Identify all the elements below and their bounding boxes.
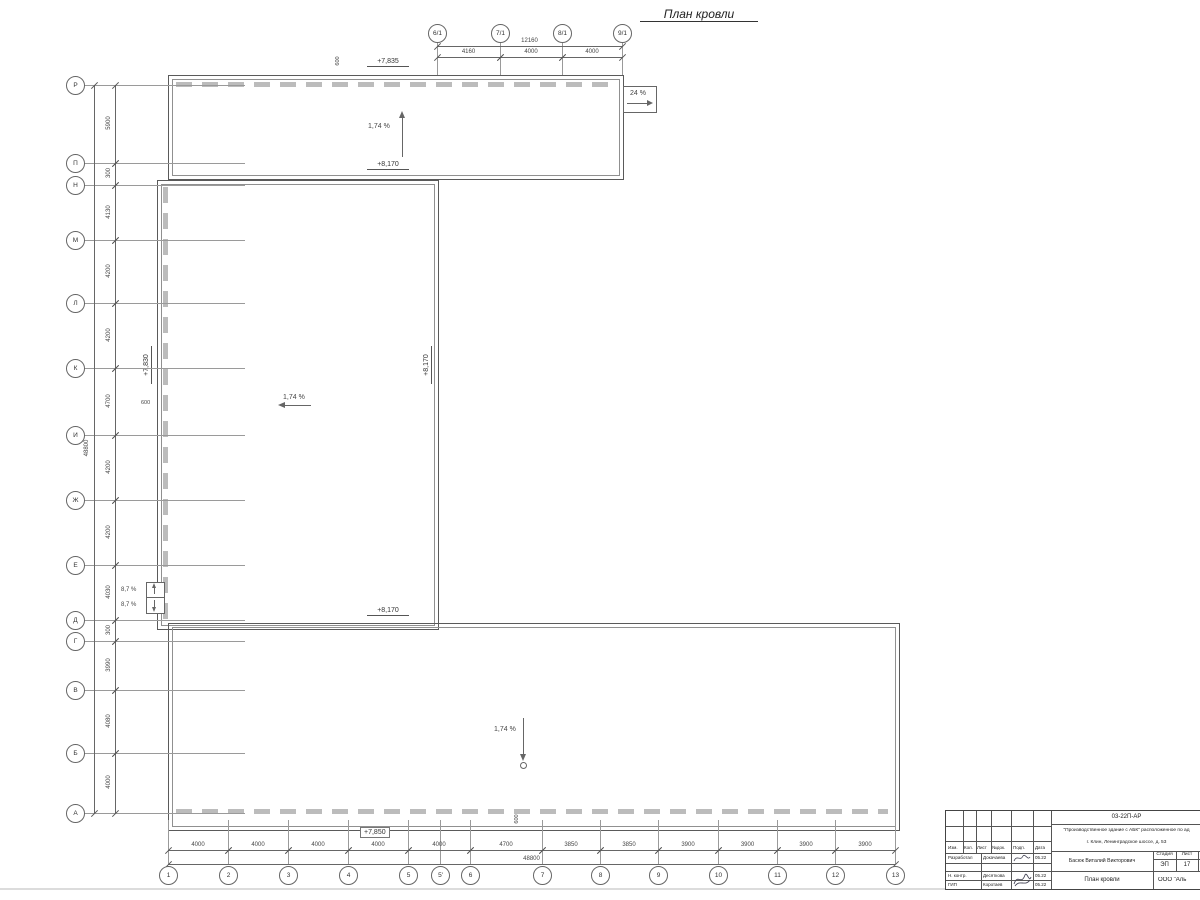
stamp-name: Коротаев <box>983 882 1002 887</box>
axis-bubble: К <box>66 359 85 378</box>
axis-bubble: 4 <box>339 866 358 885</box>
axis-bubble: 9/1 <box>613 24 632 43</box>
slope-arrowhead-icon <box>152 583 156 588</box>
dim-label: 4160 <box>462 49 475 55</box>
axis-line <box>84 753 245 754</box>
dim-label: 3900 <box>741 842 754 848</box>
axis-line <box>84 565 245 566</box>
stamp-role: ГИП <box>948 882 957 887</box>
stamp-doc-number: 03-22П-АР <box>1051 814 1200 820</box>
stamp-sheet-value: 17 <box>1176 862 1198 868</box>
axis-bubble: 7/1 <box>491 24 510 43</box>
elevation-mark: +8,170 <box>367 160 409 170</box>
elevation-mark: +7,835 <box>367 57 409 67</box>
stamp-line <box>1051 871 1200 872</box>
dim-line <box>168 864 895 865</box>
stamp-line <box>946 841 1051 842</box>
axis-bubble: 8 <box>591 866 610 885</box>
signature <box>1012 871 1032 888</box>
slope-arrow <box>627 103 648 104</box>
dim-label: 3900 <box>858 842 871 848</box>
axis-bubble: В <box>66 681 85 700</box>
axis-bubble: 3 <box>279 866 298 885</box>
axis-extension-line <box>600 820 601 864</box>
signature <box>1012 853 1032 863</box>
dim-label: 4130 <box>106 195 112 229</box>
axis-bubble: 1 <box>159 866 178 885</box>
stamp-line <box>1198 851 1199 871</box>
axis-bubble: 12 <box>826 866 845 885</box>
dim-line <box>94 85 95 813</box>
stamp-line <box>1153 859 1200 860</box>
axis-bubble: 5' <box>431 866 450 885</box>
axis-extension-line <box>777 820 778 864</box>
dim-label: 4000 <box>106 765 112 799</box>
slope-label: 24 % <box>630 90 646 98</box>
axis-bubble: Р <box>66 76 85 95</box>
axis-extension-line <box>470 820 471 864</box>
dim-label: 3990 <box>106 648 112 682</box>
axis-bubble: Д <box>66 611 85 630</box>
slope-label: 8,7 % <box>121 601 136 609</box>
stamp-line <box>946 880 1051 881</box>
elevation-mark: +8,170 <box>367 606 409 616</box>
stamp-header-list: Лист <box>977 845 987 850</box>
stamp-date: 05.22 <box>1035 882 1046 887</box>
slope-label: 8,7 % <box>121 586 136 594</box>
axis-bubble: Б <box>66 744 85 763</box>
stamp-date: 05.22 <box>1035 855 1046 860</box>
stamp-stage-value: ЭП <box>1153 862 1176 868</box>
dim-label: 4700 <box>106 384 112 418</box>
elevation-mark: +7,830 <box>142 346 152 384</box>
stamp-stage-label: Стадия <box>1153 852 1176 857</box>
axis-bubble: П <box>66 154 85 173</box>
axis-bubble: Л <box>66 294 85 313</box>
stamp-role: Разработал <box>948 855 973 860</box>
axis-bubble: 8/1 <box>553 24 572 43</box>
stamp-company: ООО "Аль <box>1158 877 1200 883</box>
slope-label: 1,74 % <box>368 123 390 131</box>
axis-line <box>84 85 245 86</box>
axis-line <box>84 303 245 304</box>
dim-label: 4200 <box>106 318 112 352</box>
dim-line <box>437 46 622 47</box>
stamp-header-kol: Кол. <box>964 845 973 850</box>
axis-bubble: 11 <box>768 866 787 885</box>
stamp-sheet-title: План кровли <box>1051 877 1153 883</box>
axis-bubble: 10 <box>709 866 728 885</box>
parapet-dashed-line-bottom <box>176 809 888 814</box>
stamp-line <box>946 826 1051 827</box>
drawing-sheet: План кровли +7,835 +8,170 +7,830 +8,170 … <box>0 0 1200 900</box>
dim-label: 4000 <box>191 842 204 848</box>
axis-line <box>84 368 245 369</box>
axis-extension-line <box>718 820 719 864</box>
axis-extension-line <box>895 820 896 864</box>
slope-arrowhead-icon <box>152 607 156 612</box>
axis-line <box>84 690 245 691</box>
dim-line <box>168 850 895 851</box>
axis-line <box>84 500 245 501</box>
dim-line <box>437 57 622 58</box>
stamp-sheet-label: Лист <box>1176 852 1198 857</box>
axis-extension-line <box>408 820 409 864</box>
stamp-header-izm: Изм. <box>948 845 958 850</box>
dim-label: 3850 <box>564 842 577 848</box>
stamp-project-line2: г. Клин, Ленинградское шоссе, д. 53 <box>1052 840 1200 845</box>
axis-bubble: М <box>66 231 85 250</box>
stamp-role: Н. контр. <box>948 873 967 878</box>
dim-label: 4000 <box>311 842 324 848</box>
drain-funnel-icon <box>520 762 527 769</box>
slope-arrow <box>402 117 403 157</box>
roof-section-bottom-inner <box>172 627 896 827</box>
axis-extension-line <box>835 820 836 864</box>
axis-bubble: Е <box>66 556 85 575</box>
stamp-header-podp: Подп. <box>1013 845 1025 850</box>
axis-bubble: И <box>66 426 85 445</box>
dim-label: 4080 <box>106 704 112 738</box>
elevation-mark: +8,170 <box>422 346 432 384</box>
slope-label: 1,74 % <box>283 394 305 402</box>
slope-arrowhead-icon <box>647 100 653 106</box>
stamp-line <box>946 853 1051 854</box>
stamp-header-data: Дата <box>1035 845 1045 850</box>
dim-label: 4200 <box>106 515 112 549</box>
slope-arrowhead-icon <box>399 111 405 118</box>
dim-label: 3900 <box>799 842 812 848</box>
parapet-dashed-line-left <box>163 187 168 621</box>
dim-label: 300 <box>106 613 112 647</box>
axis-bubble: 9 <box>649 866 668 885</box>
axis-line <box>84 813 245 814</box>
axis-extension-line <box>658 820 659 864</box>
axis-bubble: Н <box>66 176 85 195</box>
stamp-line <box>946 871 1051 872</box>
dim-label: 4000 <box>585 49 598 55</box>
dim-label: 4000 <box>371 842 384 848</box>
drawing-title: План кровли <box>640 7 758 22</box>
title-block: Изм. Кол. Лист №док. Подп. Дата Разработ… <box>945 810 1200 890</box>
slope-label: 1,74 % <box>494 726 516 734</box>
stamp-line <box>1033 811 1034 889</box>
stamp-line <box>1051 824 1200 825</box>
stamp-date: 05.22 <box>1035 873 1046 878</box>
dim-line <box>115 85 116 813</box>
dim-label: 12160 <box>521 38 538 44</box>
axis-bubble: 6/1 <box>428 24 447 43</box>
stamp-name: Докачаева <box>983 855 1005 860</box>
axis-line <box>84 435 245 436</box>
axis-extension-line <box>288 820 289 864</box>
axis-bubble: А <box>66 804 85 823</box>
axis-line <box>84 240 245 241</box>
dim-600: 600 <box>335 49 341 73</box>
dim-label: 3900 <box>681 842 694 848</box>
stamp-name: Десяткова <box>983 873 1005 878</box>
axis-bubble: 7 <box>533 866 552 885</box>
slope-arrow <box>284 405 311 406</box>
dim-label: 4000 <box>251 842 264 848</box>
dim-label: 4200 <box>106 254 112 288</box>
axis-bubble: 6 <box>461 866 480 885</box>
axis-extension-line <box>348 820 349 864</box>
axis-bubble: 13 <box>886 866 905 885</box>
dim-label: 4030 <box>106 575 112 609</box>
axis-bubble: Г <box>66 632 85 651</box>
stamp-line <box>946 863 1051 864</box>
dim-600: 600 <box>514 807 520 831</box>
dim-label: 4200 <box>106 450 112 484</box>
dim-label: 48800 <box>523 856 540 862</box>
dim-label: 5900 <box>106 106 112 140</box>
slope-arrow <box>523 718 524 754</box>
axis-bubble: 2 <box>219 866 238 885</box>
slope-arrowhead-icon <box>278 402 285 408</box>
axis-extension-line <box>542 820 543 864</box>
axis-extension-line <box>228 820 229 864</box>
stamp-header-ndok: №док. <box>992 845 1005 850</box>
dim-600: 600 <box>141 400 150 406</box>
axis-bubble: 5 <box>399 866 418 885</box>
dim-label: 4000 <box>432 842 445 848</box>
dim-label: 4000 <box>524 49 537 55</box>
stamp-project-line1: "Производственное здание с АБК" располож… <box>1052 828 1200 833</box>
axis-extension-line <box>168 820 169 864</box>
stamp-person: Басюк Виталий Викторович <box>1051 858 1153 864</box>
dim-label: 300 <box>106 156 112 190</box>
axis-bubble: Ж <box>66 491 85 510</box>
slope-arrowhead-icon <box>520 754 526 761</box>
dim-label: 3850 <box>622 842 635 848</box>
dim-label: 4700 <box>499 842 512 848</box>
elevation-mark: +7,850 <box>360 827 390 838</box>
